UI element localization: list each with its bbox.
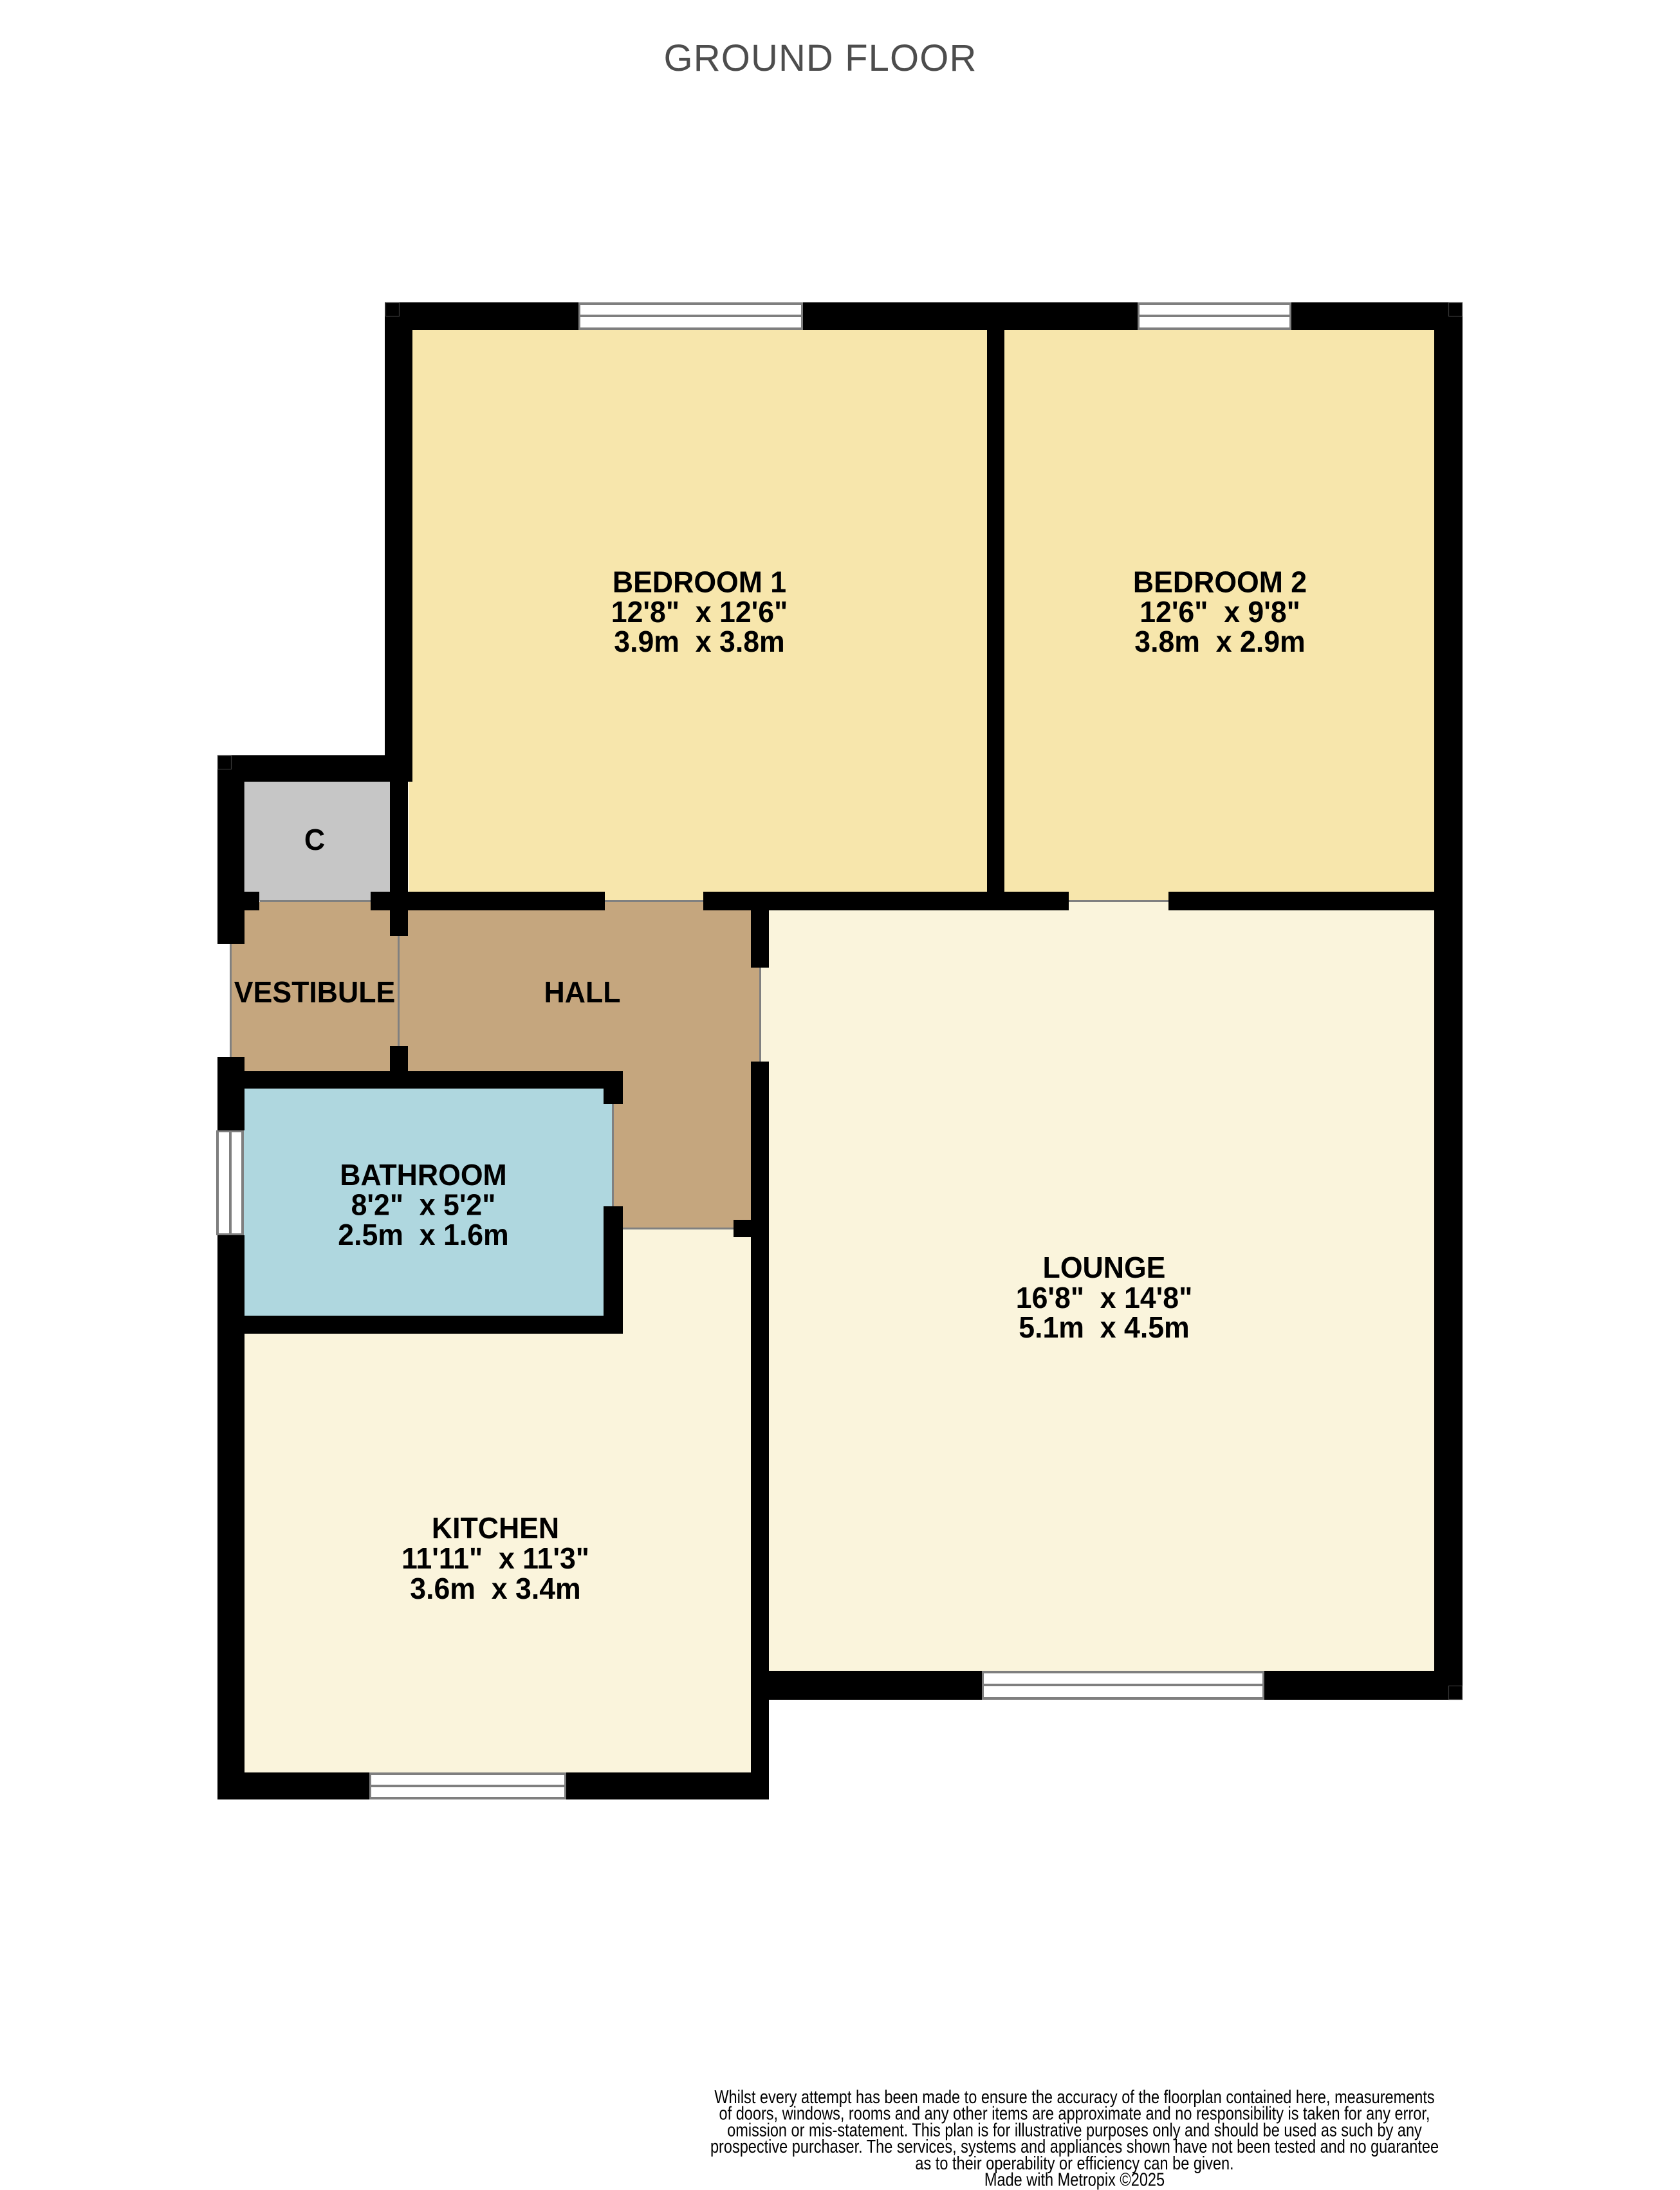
svg-text:BEDROOM 1: BEDROOM 1 [613,566,786,599]
svg-text:3.8m x 2.9m: 3.8m x 2.9m [1134,625,1305,658]
svg-text:5.1m x 4.5m: 5.1m x 4.5m [1019,1311,1189,1344]
svg-text:3.9m x 3.8m: 3.9m x 3.8m [614,625,784,658]
svg-text:12'6" x 9'8": 12'6" x 9'8" [1140,595,1300,629]
svg-text:BATHROOM: BATHROOM [340,1158,506,1192]
svg-text:2.5m x 1.6m: 2.5m x 1.6m [338,1218,508,1251]
svg-text:Made with Metropix ©2025: Made with Metropix ©2025 [984,2169,1165,2190]
svg-text:VESTIBULE: VESTIBULE [234,975,395,1009]
svg-text:HALL: HALL [544,975,621,1009]
svg-text:GROUND FLOOR: GROUND FLOOR [664,37,977,79]
svg-text:BEDROOM 2: BEDROOM 2 [1133,566,1307,599]
svg-text:12'8" x 12'6": 12'8" x 12'6" [611,595,788,629]
svg-text:8'2" x 5'2": 8'2" x 5'2" [351,1188,496,1222]
svg-text:LOUNGE: LOUNGE [1043,1251,1166,1284]
svg-text:16'8" x 14'8": 16'8" x 14'8" [1016,1281,1192,1314]
svg-text:KITCHEN: KITCHEN [432,1511,559,1545]
svg-text:3.6m x 3.4m: 3.6m x 3.4m [410,1572,580,1605]
svg-text:C: C [304,823,325,856]
svg-text:11'11" x 11'3": 11'11" x 11'3" [402,1541,589,1575]
